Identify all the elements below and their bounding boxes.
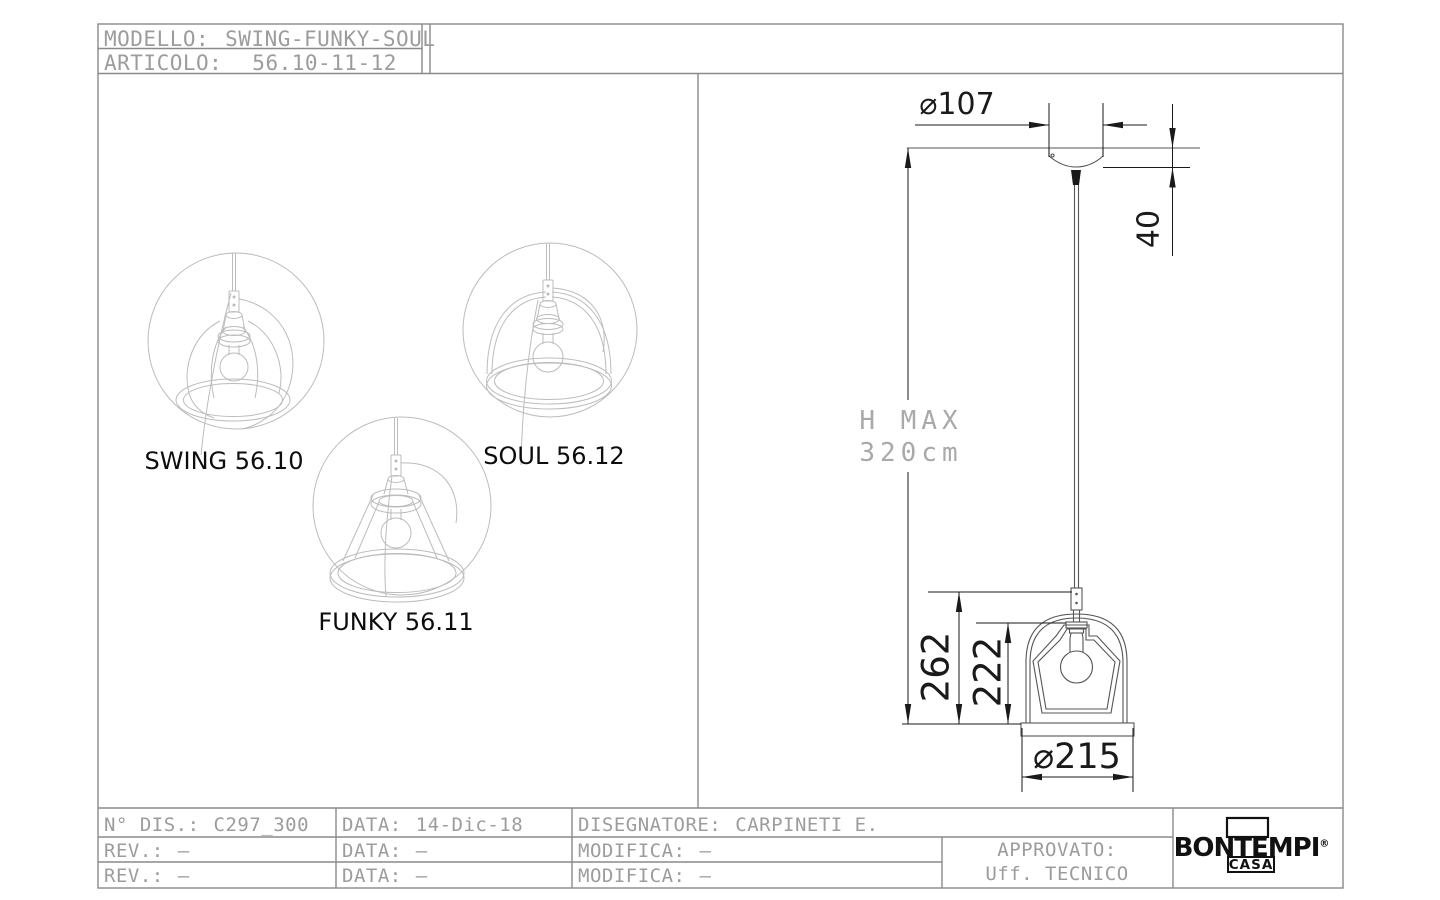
data1-value: 14-Dic-18 [416,814,523,836]
rev1-label: REV.: [104,840,164,862]
soul-lamp-sketch [463,243,637,465]
product-label-funky: FUNKY 56.11 [318,608,473,636]
modifica2-value: – [699,865,711,887]
titleblock-rev1: REV.: – [104,840,190,862]
articolo-value: 56.10-11-12 [252,51,397,75]
titleblock-modifica1: MODIFICA: – [578,840,711,862]
articolo-label: ARTICOLO: [104,51,222,75]
rev1-value: – [178,840,190,862]
disegnatore-value: CARPINETI E. [735,814,878,836]
data1-label: DATA: [342,814,402,836]
titleblock-drawing-number: N° DIS.: C297_300 [104,814,309,836]
titleblock-date2: DATA: – [342,840,428,862]
ndis-label: N° DIS.: [104,814,200,836]
dim-height-total: 262 [915,632,958,703]
titleblock-date: DATA: 14-Dic-18 [342,814,523,836]
rev2-value: – [178,865,190,887]
titleblock-date3: DATA: – [342,865,428,887]
modello-value: SWING-FUNKY-SOUL [225,27,435,51]
approved-label: APPROVATO: [997,839,1116,861]
technical-drawing-sheet: MODELLO: SWING-FUNKY-SOUL ARTICOLO: 56.1… [0,0,1440,900]
funky-lamp-sketch [313,417,491,602]
titleblock-rev2: REV.: – [104,865,190,887]
titleblock-designer: DISEGNATORE: CARPINETI E. [578,814,879,836]
data2-value: – [416,840,428,862]
articolo-row: ARTICOLO: 56.10-11-12 [104,51,397,75]
swing-lamp-sketch [148,253,324,455]
data3-label: DATA: [342,865,402,887]
rev2-label: REV.: [104,865,164,887]
brand-logo-sub: CASA [1227,856,1275,873]
product-label-soul: SOUL 56.12 [483,442,624,470]
disegnatore-label: DISEGNATORE: [578,814,721,836]
modello-row: MODELLO: SWING-FUNKY-SOUL [104,27,435,51]
dim-height-glass: 222 [967,637,1010,708]
dim-hmax-line2: 320cm [859,438,962,468]
registered-mark: ® [1319,838,1328,849]
data3-value: – [416,865,428,887]
modello-label: MODELLO: [104,27,209,51]
modifica1-value: – [699,840,711,862]
data2-label: DATA: [342,840,402,862]
dim-hmax-line1: H MAX [859,406,962,436]
modifica2-label: MODIFICA: [578,865,685,887]
product-label-swing: SWING 56.10 [145,447,304,475]
modifica1-label: MODIFICA: [578,840,685,862]
ndis-value: C297_300 [214,814,310,836]
dim-canopy-drop: 40 [1132,210,1167,248]
dim-base-diameter: ⌀215 [1033,737,1121,777]
approved-value: Uff. TECNICO [985,863,1128,885]
titleblock-modifica2: MODIFICA: – [578,865,711,887]
dim-canopy-diameter: ⌀107 [919,87,994,122]
